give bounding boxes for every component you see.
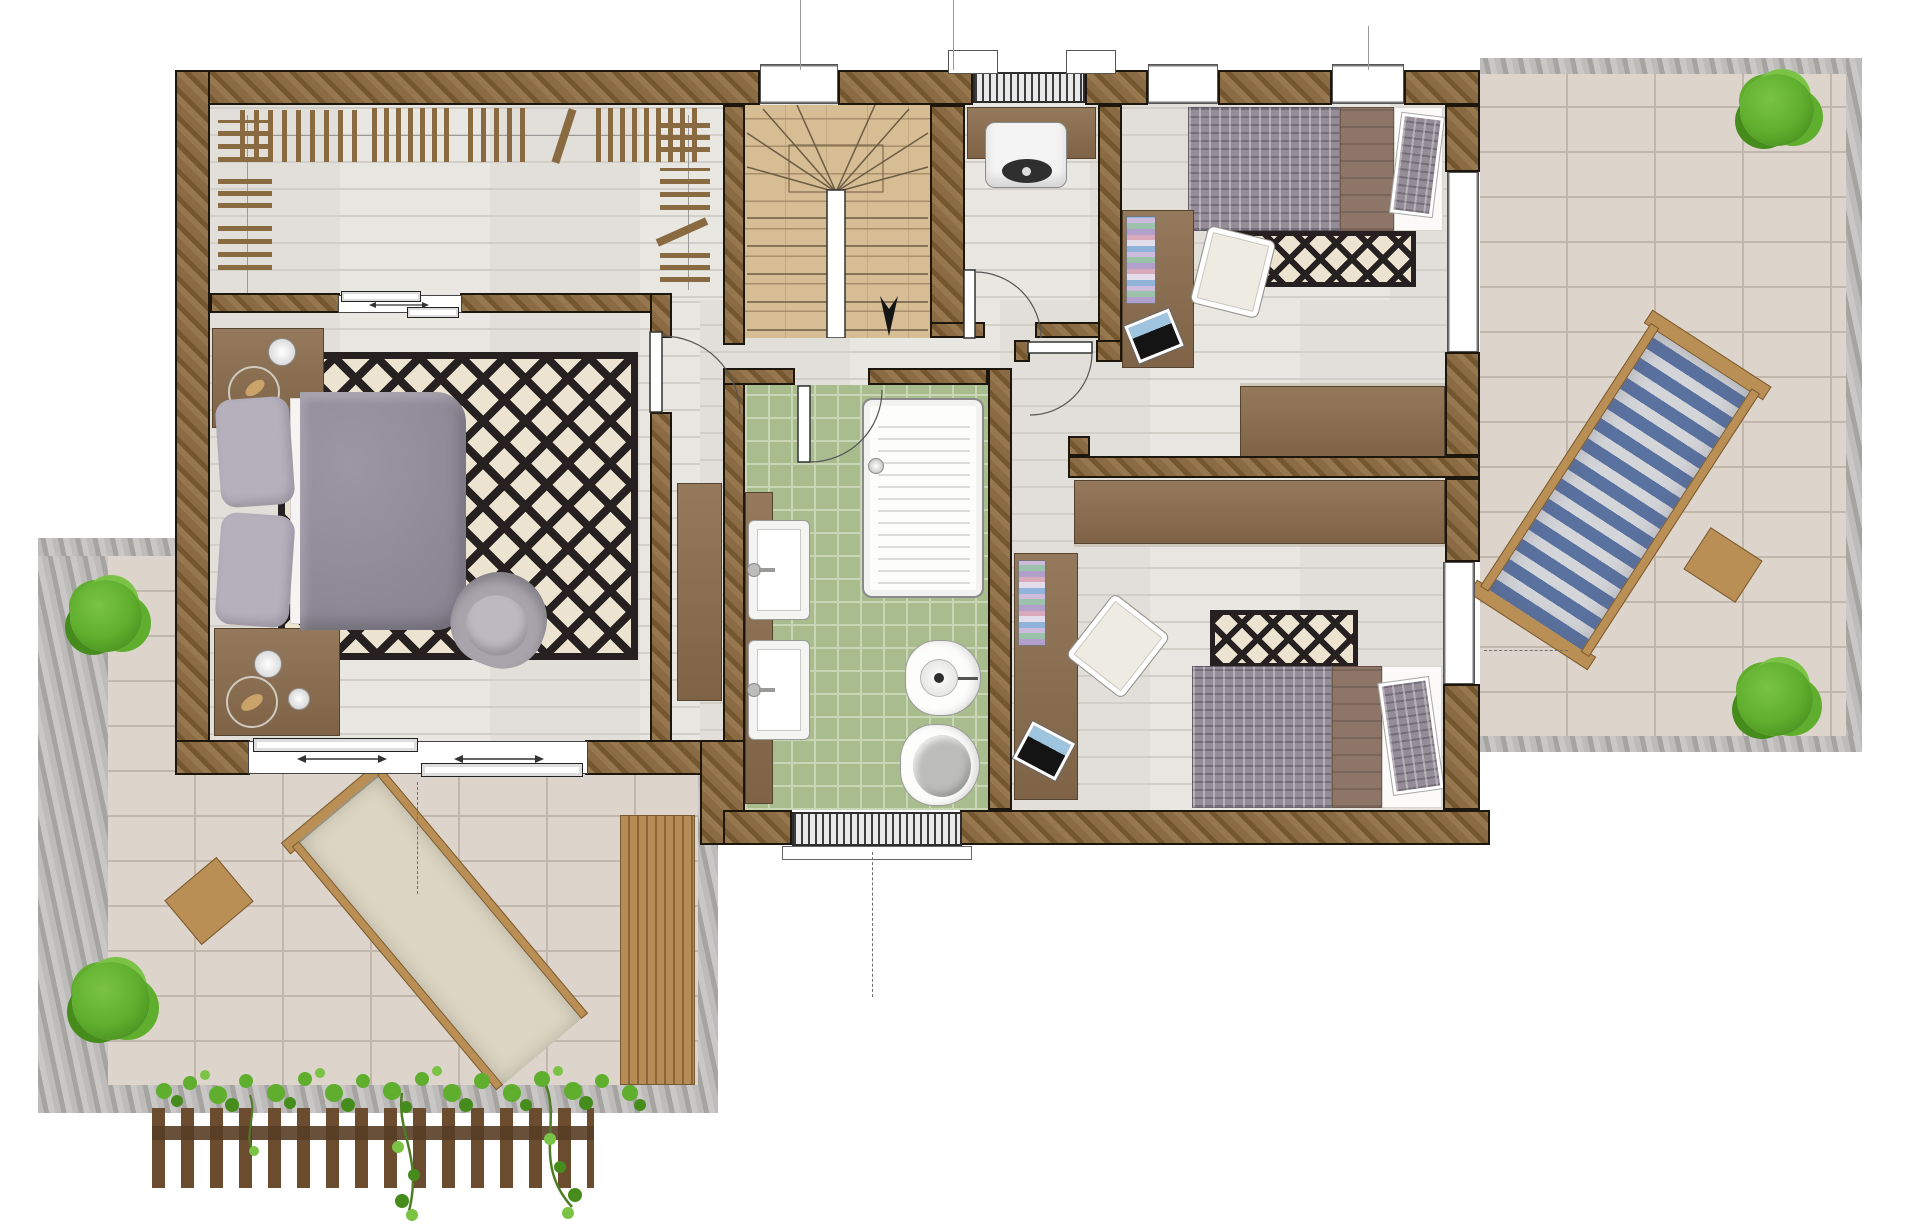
bedroom3-bed-blanket [1332, 666, 1382, 808]
utility-door [962, 268, 1044, 342]
interior-wall [650, 412, 672, 742]
exterior-wall [1445, 478, 1480, 562]
bedroom3-bed-duvet [1192, 666, 1332, 808]
hanging-clothes-rack [660, 252, 710, 282]
slide-arrow-icon [454, 754, 544, 764]
window [1332, 64, 1404, 104]
window-sill [782, 846, 972, 860]
plant-bush-icon [1740, 74, 1814, 146]
interior-wall [1068, 436, 1090, 456]
hanging-clothes-rack [218, 178, 272, 208]
interior-wall [210, 293, 340, 313]
exterior-wall [723, 810, 792, 845]
bathroom-sink [748, 640, 810, 740]
closet-sliding-door [338, 295, 462, 313]
dimension-line [800, 0, 801, 70]
dimension-line [953, 0, 954, 70]
bidet [905, 640, 981, 716]
lamp-icon [268, 338, 296, 366]
bathroom-sink [748, 520, 810, 620]
window [760, 64, 838, 104]
bedroom3-books [1018, 560, 1046, 646]
bathroom-door [794, 384, 886, 466]
bedroom2-books [1126, 216, 1156, 304]
staircase-treads [745, 105, 930, 338]
wall-boiler [985, 122, 1067, 188]
plant-bush-icon [72, 962, 150, 1040]
exterior-wall [1443, 684, 1480, 810]
window [1148, 64, 1218, 104]
interior-wall [723, 105, 745, 345]
hall-tall-cabinet [677, 483, 722, 701]
plant-bush-icon [1737, 662, 1813, 736]
interior-wall [930, 105, 965, 338]
window-sill [948, 50, 998, 74]
exterior-wall [1218, 70, 1332, 105]
entry-centerline [872, 852, 873, 997]
door-centerline [1484, 650, 1568, 651]
hanging-clothes-rack [468, 108, 526, 162]
interior-wall [988, 368, 1012, 810]
master-bed-duvet [300, 392, 466, 630]
terrace-right-border-top [1480, 58, 1862, 74]
bedroom2-wardrobe [1240, 386, 1445, 458]
master-bed-pillow [214, 512, 296, 629]
exterior-wall [960, 810, 1490, 845]
exterior-wall [1404, 70, 1480, 105]
vent-window [973, 72, 1085, 103]
bedroom2-bed-duvet [1188, 107, 1340, 231]
exterior-wall [175, 70, 210, 775]
lamp-icon [254, 650, 282, 678]
exterior-wall [838, 70, 973, 105]
interior-wall [460, 293, 652, 313]
dimension-line [1368, 26, 1369, 70]
interior-wall [723, 368, 745, 748]
interior-wall [1096, 340, 1122, 362]
master-sliding-door [248, 741, 588, 774]
window-sill [1066, 50, 1116, 74]
hanging-clothes-rack [372, 108, 454, 162]
bedroom2-door [1026, 340, 1098, 426]
terrace-right-border-bottom [1480, 736, 1862, 752]
exterior-wall [1445, 352, 1480, 456]
bathroom-window [792, 812, 962, 846]
exterior-wall [1445, 105, 1480, 172]
hanging-clothes-rack [218, 120, 272, 162]
hanging-clothes-rack [218, 226, 272, 270]
slide-arrow-icon [297, 754, 387, 764]
toilet-lid [913, 735, 971, 797]
bedroom2-bed-blanket [1340, 107, 1394, 231]
window [1443, 562, 1475, 684]
window [1447, 172, 1479, 352]
master-bed-pillow [214, 396, 295, 509]
toilet [900, 724, 980, 806]
interior-wall [868, 368, 988, 385]
interior-wall [1098, 105, 1122, 362]
bedroom3-diamond-rug [1210, 610, 1358, 668]
decor-icon [288, 688, 310, 710]
master-door [648, 330, 742, 418]
floor-plan-canvas [0, 0, 1920, 1225]
interior-wall [1068, 456, 1480, 478]
bedroom3-wardrobe [1074, 480, 1445, 544]
wood-deck-strip [620, 815, 695, 1085]
plant-bush-icon [70, 580, 142, 652]
slide-arrow-icon [369, 301, 429, 309]
hanging-clothes-rack [660, 168, 710, 210]
door-centerline [417, 782, 418, 894]
exterior-wall [175, 740, 250, 775]
ivy-vines [130, 1055, 670, 1225]
hanging-clothes-rack [660, 120, 710, 152]
terrace-right-border-right [1846, 58, 1862, 752]
exterior-wall [1085, 70, 1148, 105]
exterior-wall [175, 70, 760, 105]
